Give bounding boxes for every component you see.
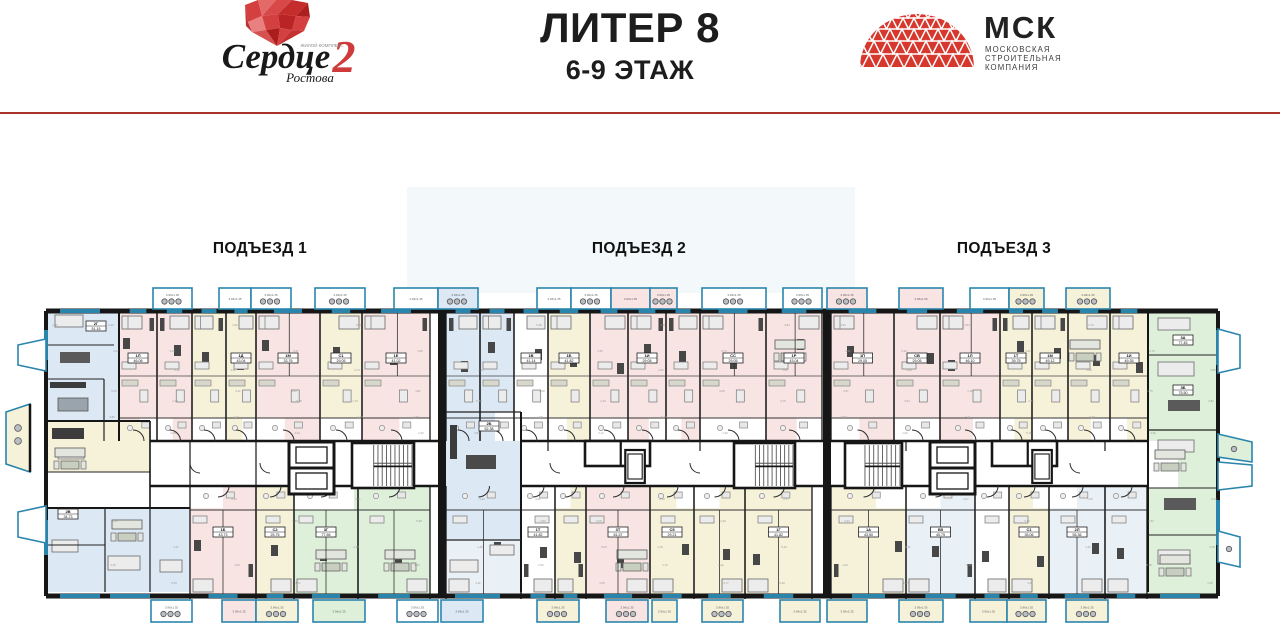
svg-text:1,15: 1,15 [657, 545, 663, 549]
svg-text:1Е: 1Е [394, 353, 399, 358]
svg-text:3.96х1.35: 3.96х1.35 [793, 610, 807, 614]
svg-text:4,21: 4,21 [235, 389, 241, 393]
svg-text:2,87: 2,87 [843, 389, 849, 393]
svg-text:77.66: 77.66 [322, 533, 331, 537]
svg-text:2,37: 2,37 [783, 497, 789, 501]
svg-text:4,86: 4,86 [1210, 368, 1216, 372]
svg-text:2,22: 2,22 [1028, 399, 1034, 403]
svg-text:1Д: 1Д [238, 353, 243, 358]
svg-text:1Б: 1Б [566, 353, 571, 358]
svg-text:1,15: 1,15 [967, 389, 973, 393]
svg-text:1,35: 1,35 [357, 415, 363, 419]
svg-text:4,01: 4,01 [845, 349, 851, 353]
svg-text:46.10: 46.10 [966, 359, 975, 363]
svg-text:3,24: 3,24 [294, 431, 300, 435]
svg-text:2,27: 2,27 [353, 545, 359, 549]
svg-text:1М: 1М [1047, 353, 1053, 358]
svg-text:5,73: 5,73 [721, 349, 727, 353]
svg-text:5,88: 5,88 [476, 399, 482, 403]
svg-text:46.08: 46.08 [134, 359, 143, 363]
svg-text:75.50: 75.50 [1179, 391, 1188, 395]
svg-text:5,08: 5,08 [906, 368, 912, 372]
svg-text:1,35: 1,35 [1207, 581, 1213, 585]
svg-text:3.96х1.35: 3.96х1.35 [166, 293, 180, 297]
svg-text:3.96х1.35: 3.96х1.35 [982, 610, 996, 614]
svg-text:3.96х1.35: 3.96х1.35 [451, 293, 465, 297]
svg-text:1,00: 1,00 [902, 431, 908, 435]
svg-text:3,54: 3,54 [964, 323, 970, 327]
svg-text:2Л: 2Л [1074, 527, 1079, 532]
svg-text:3.96х1.35: 3.96х1.35 [796, 293, 810, 297]
svg-text:3А: 3А [1180, 335, 1185, 340]
svg-text:3,64: 3,64 [234, 563, 240, 567]
svg-text:3.96х1.35: 3.96х1.35 [270, 606, 284, 610]
svg-text:4,41: 4,41 [475, 581, 481, 585]
svg-text:1,00: 1,00 [52, 323, 58, 327]
svg-text:3,14: 3,14 [1024, 519, 1030, 523]
svg-text:3.96х1.35: 3.96х1.35 [840, 293, 854, 297]
svg-text:55.36: 55.36 [1073, 533, 1082, 537]
svg-text:5,18: 5,18 [1026, 431, 1032, 435]
svg-text:1Л: 1Л [967, 353, 972, 358]
svg-text:4,26: 4,26 [720, 519, 726, 523]
svg-text:5,13: 5,13 [231, 497, 237, 501]
svg-text:2,07: 2,07 [113, 349, 119, 353]
svg-text:52.38: 52.38 [485, 427, 494, 431]
svg-text:5,23: 5,23 [661, 415, 667, 419]
svg-text:39.75: 39.75 [1012, 359, 1021, 363]
svg-text:29.05: 29.05 [729, 359, 738, 363]
svg-text:3.96х1.35: 3.96х1.35 [584, 293, 598, 297]
svg-text:41.82: 41.82 [534, 533, 543, 537]
svg-text:3,74: 3,74 [354, 368, 360, 372]
svg-text:2,12: 2,12 [598, 431, 604, 435]
svg-text:3,09: 3,09 [539, 389, 545, 393]
svg-text:3,84: 3,84 [474, 431, 480, 435]
svg-text:3.96х1.35: 3.96х1.35 [232, 610, 246, 614]
svg-text:1,75: 1,75 [1147, 389, 1153, 393]
svg-text:3Г: 3Г [324, 527, 329, 532]
svg-text:4,16: 4,16 [600, 399, 606, 403]
svg-text:5,28: 5,28 [296, 399, 302, 403]
svg-text:3,49: 3,49 [169, 349, 175, 353]
svg-text:4,36: 4,36 [840, 323, 846, 327]
svg-text:3.96х1.35: 3.96х1.35 [455, 610, 469, 614]
svg-text:25.75: 25.75 [271, 533, 280, 537]
svg-text:41.82: 41.82 [774, 533, 783, 537]
svg-text:1,70: 1,70 [352, 399, 358, 403]
svg-text:В5: В5 [938, 527, 944, 532]
svg-text:5,48: 5,48 [536, 323, 542, 327]
svg-text:43.73: 43.73 [219, 533, 228, 537]
svg-text:3.96х1.35: 3.96х1.35 [1020, 606, 1034, 610]
svg-text:1Т: 1Т [536, 527, 541, 532]
svg-text:5,68: 5,68 [1086, 368, 1092, 372]
svg-text:3.96х1.35: 3.96х1.35 [983, 297, 997, 301]
svg-text:5,33: 5,33 [781, 545, 787, 549]
svg-text:4,61: 4,61 [1025, 349, 1031, 353]
svg-text:3.96х1.35: 3.96х1.35 [409, 297, 423, 301]
svg-text:5,28: 5,28 [1146, 563, 1152, 567]
svg-text:33.76: 33.76 [284, 359, 293, 363]
svg-text:2,42: 2,42 [108, 323, 114, 327]
svg-text:1,80: 1,80 [782, 368, 788, 372]
svg-text:С1: С1 [338, 353, 344, 358]
svg-text:3,29: 3,29 [1089, 415, 1095, 419]
svg-text:29.05: 29.05 [643, 359, 652, 363]
svg-text:4,76: 4,76 [780, 399, 786, 403]
svg-text:41.14: 41.14 [527, 359, 536, 363]
svg-text:1,55: 1,55 [597, 349, 603, 353]
svg-text:3.96х1.35: 3.96х1.35 [914, 297, 928, 301]
svg-text:3.96х1.35: 3.96х1.35 [1081, 293, 1095, 297]
svg-text:1Л: 1Л [135, 353, 140, 358]
svg-text:С2: С2 [272, 527, 278, 532]
svg-text:2,52: 2,52 [538, 563, 544, 567]
svg-text:3.96х1.35: 3.96х1.35 [332, 610, 346, 614]
svg-text:4,66: 4,66 [660, 323, 666, 327]
svg-text:1,50: 1,50 [112, 519, 118, 523]
svg-text:1,05: 1,05 [537, 415, 543, 419]
svg-text:3,44: 3,44 [844, 519, 850, 523]
svg-text:3Т: 3Т [616, 527, 621, 532]
svg-text:1П: 1П [860, 353, 865, 358]
svg-text:3,89: 3,89 [109, 415, 115, 419]
svg-text:5,78: 5,78 [356, 323, 362, 327]
svg-text:1,30: 1,30 [722, 431, 728, 435]
svg-text:1М: 1М [285, 353, 291, 358]
svg-text:1,65: 1,65 [1027, 581, 1033, 585]
svg-text:3.96х1.35: 3.96х1.35 [840, 610, 854, 614]
svg-text:1,70: 1,70 [662, 563, 668, 567]
svg-text:3,34: 3,34 [414, 563, 420, 567]
svg-text:2,62: 2,62 [658, 368, 664, 372]
svg-text:35.06: 35.06 [1025, 533, 1034, 537]
svg-text:1,45: 1,45 [477, 545, 483, 549]
svg-text:3,19: 3,19 [659, 497, 665, 501]
svg-text:3,59: 3,59 [599, 581, 605, 585]
svg-text:1Г: 1Г [776, 527, 781, 532]
svg-text:СВ: СВ [914, 353, 920, 358]
svg-text:2Г: 2Г [94, 321, 99, 326]
svg-text:5,53: 5,53 [171, 581, 177, 585]
svg-text:3.96х1.35: 3.96х1.35 [333, 293, 347, 297]
svg-text:2,77: 2,77 [723, 581, 729, 585]
svg-text:3,84: 3,84 [784, 323, 790, 327]
svg-text:3.96х1.35: 3.96х1.35 [914, 606, 928, 610]
svg-text:77.45: 77.45 [1179, 341, 1188, 345]
svg-text:43.04: 43.04 [237, 359, 246, 363]
svg-text:4,81: 4,81 [415, 389, 421, 393]
svg-text:3.96х1.35: 3.96х1.35 [657, 293, 671, 297]
svg-text:5,83: 5,83 [841, 415, 847, 419]
svg-text:3.96х1.35: 3.96х1.35 [727, 293, 741, 297]
svg-text:3,14: 3,14 [174, 368, 180, 372]
svg-text:4,56: 4,56 [540, 519, 546, 523]
svg-text:3.96х1.35: 3.96х1.35 [551, 606, 565, 610]
svg-text:3.96х1.35: 3.96х1.35 [411, 606, 425, 610]
svg-text:2,02: 2,02 [478, 368, 484, 372]
svg-text:4,36: 4,36 [1150, 431, 1156, 435]
svg-text:3Б: 3Б [1180, 385, 1185, 390]
svg-text:3,49: 3,49 [479, 497, 485, 501]
svg-text:1,20: 1,20 [292, 519, 298, 523]
svg-text:5,08: 5,08 [596, 519, 602, 523]
svg-text:81.57: 81.57 [614, 533, 623, 537]
svg-text:41.82: 41.82 [565, 359, 574, 363]
svg-text:1,40: 1,40 [842, 563, 848, 567]
svg-text:5,38: 5,38 [416, 519, 422, 523]
svg-text:2,77: 2,77 [413, 415, 419, 419]
svg-text:29.05: 29.05 [858, 359, 867, 363]
svg-text:29.21: 29.21 [668, 533, 677, 537]
svg-text:2,82: 2,82 [1208, 399, 1214, 403]
svg-text:1В: 1В [528, 353, 533, 358]
svg-text:45.75: 45.75 [936, 533, 945, 537]
svg-text:3.96х1.35: 3.96х1.35 [1080, 606, 1094, 610]
svg-text:1А: 1А [866, 527, 871, 532]
svg-text:1И: 1И [644, 353, 649, 358]
svg-text:3.96х1.35: 3.96х1.35 [716, 606, 730, 610]
svg-text:2В: 2В [65, 509, 70, 514]
svg-text:5,43: 5,43 [901, 349, 907, 353]
svg-text:3.96х1.35: 3.96х1.35 [165, 606, 179, 610]
svg-text:4,71: 4,71 [295, 581, 301, 585]
svg-text:2,07: 2,07 [963, 497, 969, 501]
svg-text:41.02: 41.02 [392, 359, 401, 363]
svg-text:29.05: 29.05 [337, 359, 346, 363]
svg-text:3,69: 3,69 [719, 389, 725, 393]
svg-text:3.96х1.35: 3.96х1.35 [264, 293, 278, 297]
svg-text:С1: С1 [1026, 527, 1032, 532]
svg-text:5,63: 5,63 [291, 389, 297, 393]
svg-text:4,51: 4,51 [905, 545, 911, 549]
svg-text:29.05: 29.05 [913, 359, 922, 363]
svg-text:1Т: 1Т [1014, 353, 1019, 358]
svg-text:5,43: 5,43 [1211, 497, 1217, 501]
svg-text:4,56: 4,56 [230, 368, 236, 372]
svg-text:5,03: 5,03 [111, 389, 117, 393]
svg-text:2,17: 2,17 [233, 415, 239, 419]
svg-text:34.73: 34.73 [64, 515, 73, 519]
svg-text:1И: 1И [1126, 353, 1131, 358]
svg-text:1,60: 1,60 [232, 323, 238, 327]
svg-text:3,79: 3,79 [1149, 349, 1155, 353]
svg-text:1,85: 1,85 [417, 349, 423, 353]
svg-text:3.96х1.35: 3.96х1.35 [1020, 293, 1034, 297]
svg-text:2,47: 2,47 [903, 581, 909, 585]
svg-text:СС: СС [730, 353, 736, 358]
svg-text:4,46: 4,46 [110, 563, 116, 567]
svg-text:51.15: 51.15 [92, 327, 101, 331]
svg-text:49.12: 49.12 [1046, 359, 1055, 363]
svg-text:3,39: 3,39 [1209, 545, 1215, 549]
svg-text:3.96х1.35: 3.96х1.35 [547, 297, 561, 301]
svg-text:2Б: 2Б [486, 421, 491, 426]
svg-text:43.50: 43.50 [864, 533, 873, 537]
svg-text:4,01: 4,01 [535, 497, 541, 501]
svg-text:3.96х1.35: 3.96х1.35 [624, 297, 638, 301]
svg-text:3.96х1.35: 3.96х1.35 [228, 297, 242, 301]
svg-text:1Р: 1Р [792, 353, 797, 358]
svg-text:2,42: 2,42 [418, 431, 424, 435]
svg-text:4,31: 4,31 [355, 497, 361, 501]
svg-text:5,63: 5,63 [601, 545, 607, 549]
svg-text:43.04: 43.04 [790, 359, 799, 363]
svg-text:2,67: 2,67 [293, 349, 299, 353]
svg-text:3,04: 3,04 [904, 399, 910, 403]
svg-text:С5: С5 [669, 527, 675, 532]
svg-text:1,25: 1,25 [1087, 497, 1093, 501]
svg-text:2,22: 2,22 [718, 563, 724, 567]
svg-text:3.96х1.35: 3.96х1.35 [620, 606, 634, 610]
svg-text:1,10: 1,10 [172, 399, 178, 403]
svg-text:5,58: 5,58 [966, 563, 972, 567]
svg-text:2,32: 2,32 [1148, 519, 1154, 523]
svg-text:4,21: 4,21 [1085, 545, 1091, 549]
svg-text:4,11: 4,11 [965, 415, 971, 419]
svg-text:1Б: 1Б [220, 527, 225, 532]
svg-text:2,57: 2,57 [173, 545, 179, 549]
svg-text:4,06: 4,06 [170, 431, 176, 435]
svg-text:49.35: 49.35 [1125, 359, 1134, 363]
svg-text:2,72: 2,72 [1088, 323, 1094, 327]
svg-text:3.96х1.35: 3.96х1.35 [658, 610, 672, 614]
svg-text:3,29: 3,29 [779, 581, 785, 585]
